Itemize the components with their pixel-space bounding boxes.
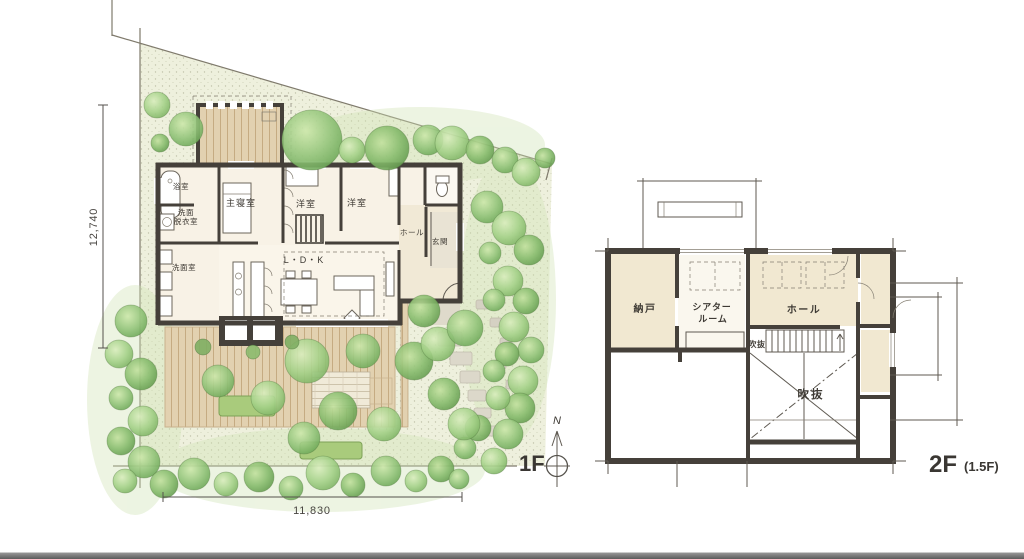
vanity	[159, 250, 172, 264]
tv-board	[386, 262, 394, 296]
label-ldk: L・D・K	[284, 255, 325, 265]
label-powder: 洗面室	[172, 262, 196, 272]
cabinet	[159, 272, 172, 290]
label-hall-1f: ホール	[400, 228, 424, 237]
label-wash-1: 洗面	[178, 207, 194, 217]
sofa	[334, 276, 374, 290]
label-west1: 洋室	[296, 198, 316, 209]
storage-floor	[611, 254, 675, 348]
desk	[389, 168, 398, 196]
floor2-sublabel: (1.5F)	[964, 459, 999, 474]
dim-height-label: 12,740	[88, 208, 100, 246]
deck-step	[370, 378, 392, 404]
label-storage: 納戸	[634, 302, 657, 315]
label-master: 主寝室	[226, 197, 256, 208]
floorplan-drawing: 浴室 洗面 脱衣室 洗面室 主寝室 洋室 洋室 ホール 玄関 L・D・K	[0, 0, 1024, 559]
kitchen-counter	[233, 262, 244, 318]
dim-width-label: 11,830	[293, 505, 331, 517]
theater-floor	[678, 254, 745, 348]
north-terrace-deck	[200, 105, 280, 163]
north-compass: N	[544, 415, 570, 487]
dining-table	[281, 279, 317, 305]
roof-lines-2f	[637, 178, 762, 248]
kitchen-island	[251, 262, 264, 318]
north-letter: N	[553, 415, 561, 427]
label-entrance: 玄関	[432, 236, 448, 246]
label-theater-2: ルーム	[698, 314, 727, 324]
floor2-label: 2F	[929, 451, 957, 478]
washer	[160, 214, 174, 230]
label-theater-1: シアター	[692, 301, 731, 312]
label-west2: 洋室	[347, 197, 367, 208]
label-void-large: 吹抜	[798, 387, 825, 401]
plan-2f: 納戸 シアター ルーム ホール 吹抜 吹抜 2F (1.5F)	[595, 178, 999, 487]
label-void-small: 吹抜	[749, 339, 766, 349]
side-room-floor	[861, 330, 890, 392]
label-wash-2: 脱衣室	[174, 216, 198, 226]
label-hall-2f: ホール	[787, 304, 822, 316]
skylight	[658, 202, 742, 217]
master-bed	[223, 183, 251, 233]
floor1-label: 1F	[519, 451, 545, 476]
label-bath: 浴室	[173, 181, 189, 191]
balcony-outline-2f	[890, 277, 963, 426]
floorplan-page: 浴室 洗面 脱衣室 洗面室 主寝室 洋室 洋室 ホール 玄関 L・D・K	[0, 0, 1024, 559]
toilet-fixture	[437, 182, 448, 197]
counter	[160, 296, 172, 316]
footer-bar	[0, 553, 1024, 559]
closet2-floor	[861, 254, 890, 326]
